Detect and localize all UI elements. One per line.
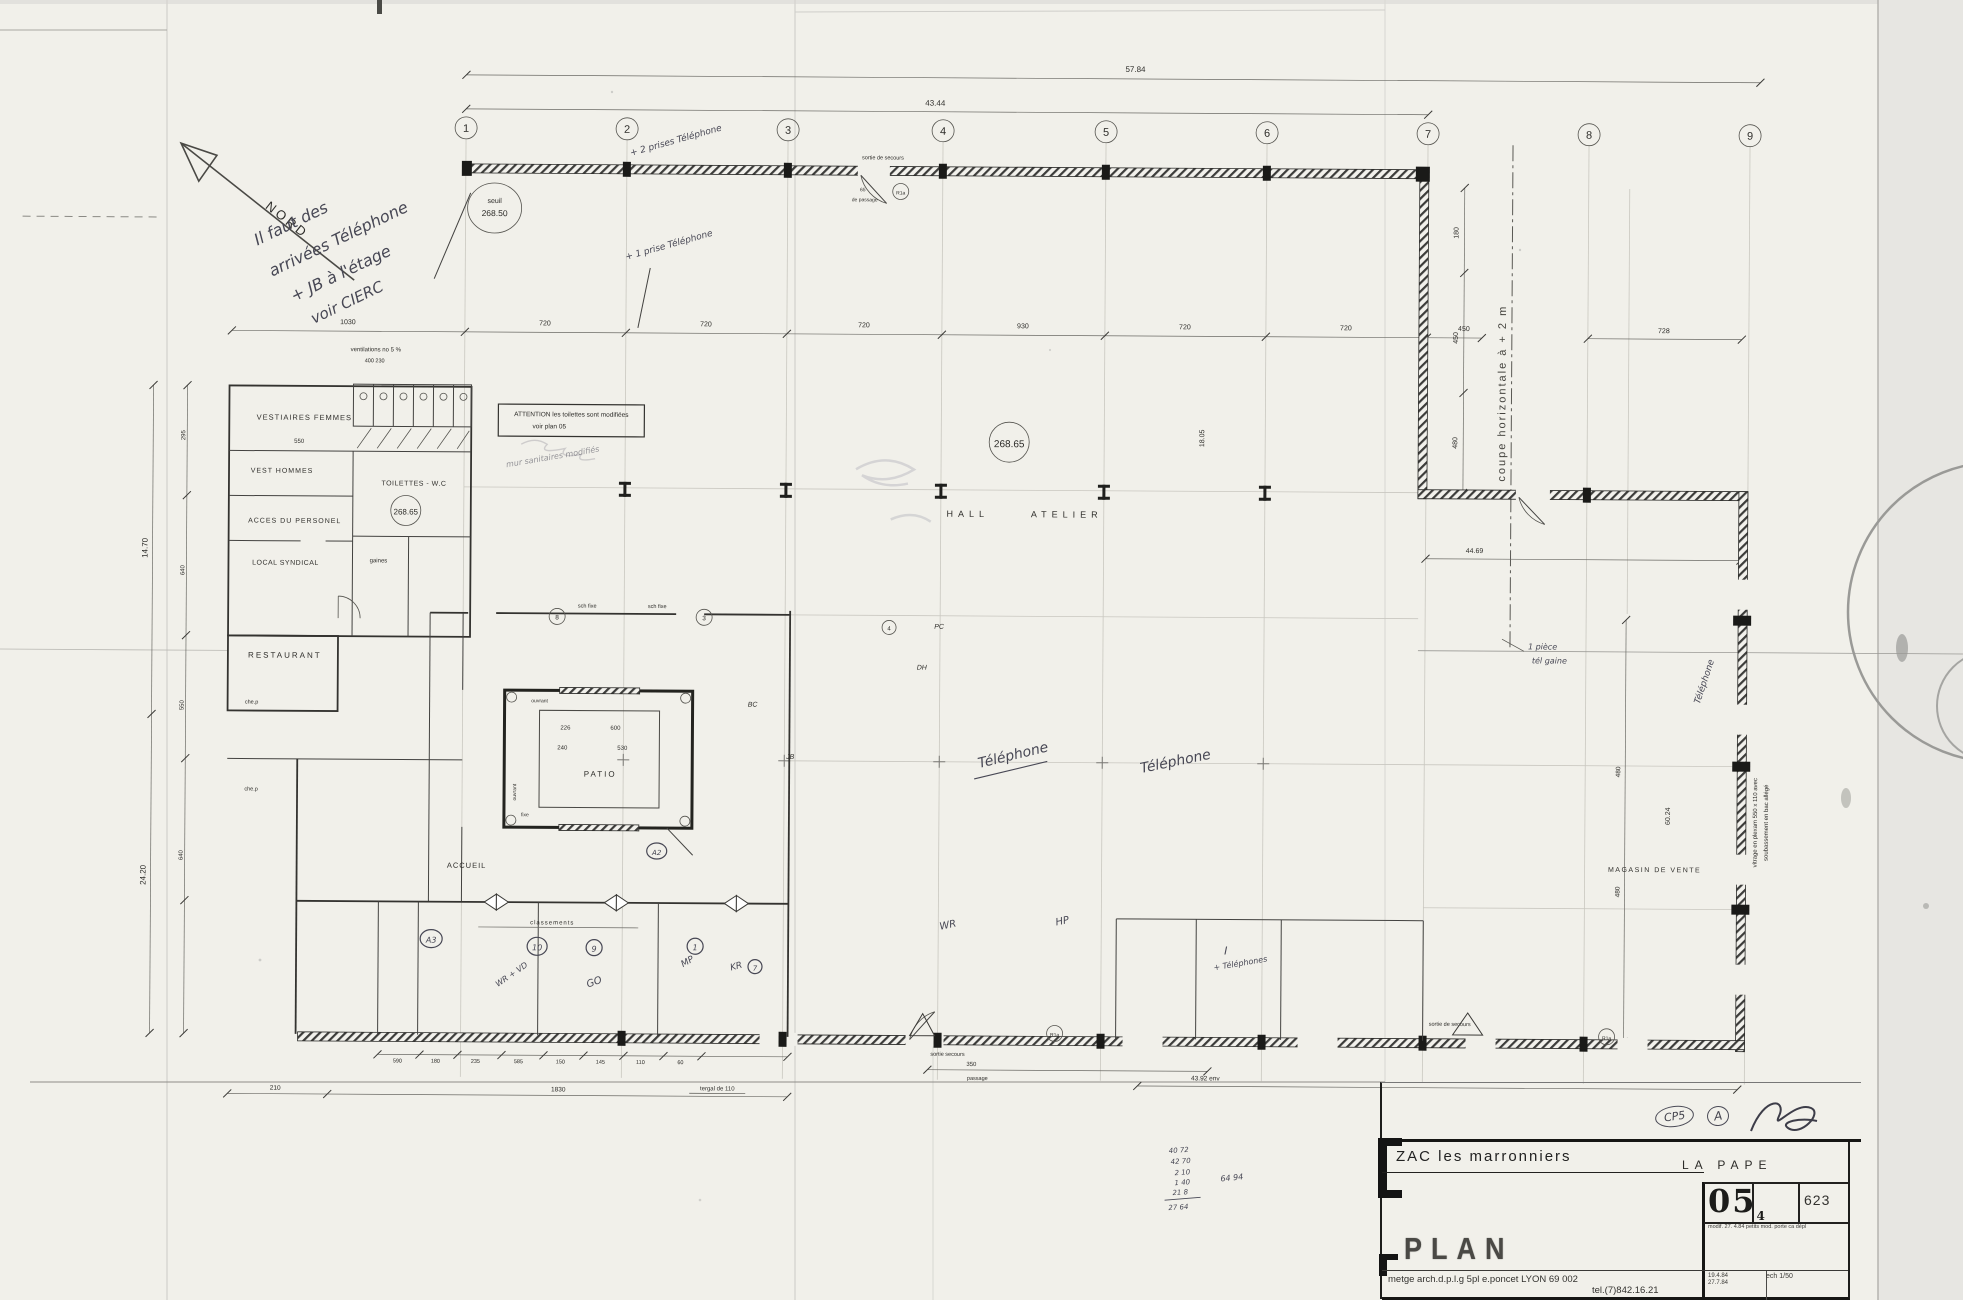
dim-bottom-1: 180 [431, 1059, 440, 1065]
drawing-content: 1 2 3 4 5 6 7 8 9 [0, 58, 1963, 1217]
dim-patio-600: 600 [610, 726, 621, 732]
vertical-texts: coupe horizontale à + 2 m vitrage en ple… [1494, 305, 1773, 868]
architect-phone: tel.(7)842.16.21 [1592, 1285, 1659, 1296]
dim-bottom-0: 590 [393, 1058, 402, 1064]
sortie-top-passage: de passage [852, 197, 878, 203]
project-name: ZAC les marronniers [1396, 1148, 1572, 1165]
dim-550: 550 [294, 439, 305, 445]
attention-note: ATTENTION les toilettes sont modifiées v… [498, 404, 644, 470]
registration-bracket-icon [1378, 1138, 1402, 1198]
note-go: GO [585, 975, 604, 991]
code-10: 10 [532, 943, 542, 952]
mark-ouvrant-1: ouvrant [531, 698, 548, 704]
note-plus2-prises: + 2 prises Téléphone [629, 122, 724, 158]
sortie-labels: sortie de secours 65 de passage sortie s… [846, 155, 1476, 1085]
note-tel-gaine: tél gaine [1532, 655, 1567, 665]
modif-label: modif. [1708, 1224, 1723, 1230]
architect-row: metge arch.d.p.l.g 5pl e.poncet LYON 69 … [1382, 1270, 1848, 1298]
mark-pc: PC [934, 624, 945, 631]
dim-patio-226: 226 [560, 725, 571, 731]
modif-text: 27. 4.84 petits mod. porte ca dépl [1725, 1224, 1807, 1230]
note-telephone-3: Téléphone [1692, 658, 1717, 706]
seuil-label: seuil [487, 198, 502, 205]
note-wr-vd: WR + VD [494, 960, 529, 988]
note-1-piece: 1 pièce [1528, 641, 1557, 651]
stamp-circle: CP5 [1654, 1103, 1696, 1129]
tally-row-2: 2 10 [1174, 1168, 1191, 1177]
outer-walls [298, 160, 1754, 1053]
note-i-label: I [1224, 944, 1227, 957]
sortie-bottom-passage: passage [967, 1076, 988, 1082]
construction-grid [0, 136, 1963, 1086]
grid-bubble-5: 5 [1103, 127, 1109, 139]
room-acces-personnel: ACCES DU PERSONEL [248, 518, 341, 526]
sheet-ref: 623 [1804, 1192, 1830, 1208]
signature-scribble [1741, 1091, 1833, 1141]
dim-right-450: 450 [1453, 332, 1460, 344]
level-markers: 268.65 268.65 [391, 418, 1030, 529]
mark-dh: DH [917, 665, 928, 672]
mark-ouvrant-2: ouvrant [512, 783, 518, 800]
grid-bubble-2: 2 [624, 124, 630, 136]
mark-classements: classements [530, 920, 574, 926]
code-8: 8 [555, 614, 559, 621]
mark-schfixe-2: sch fixe [648, 604, 667, 610]
mark-schfixe-1: sch fixe [578, 604, 597, 610]
room-hall: HALL [946, 509, 989, 519]
tally-row-1: 42 70 [1170, 1157, 1191, 1166]
room-chep-2: che.p [244, 787, 258, 793]
structural-columns [617, 482, 1271, 770]
door-swings [856, 175, 1547, 1043]
vitrage-line2: soubassement en bac allégé [1764, 784, 1770, 861]
code-r1a-bottom: R1a [1050, 1032, 1059, 1038]
grid-bubble-8: 8 [1586, 130, 1592, 142]
modification-note: modif. 27. 4.84 petits mod. porte ca dép… [1708, 1224, 1846, 1231]
dim-row-6: 720 [1340, 325, 1352, 332]
dim-5784: 57.84 [1125, 65, 1146, 74]
seuil-level-marker: seuil 268.50 [434, 183, 522, 280]
dim-row-5: 720 [1179, 324, 1191, 331]
dim-4392: 43.92 env [1191, 1075, 1220, 1082]
dim-right-180: 180 [1453, 227, 1460, 239]
room-atelier: ATELIER [1031, 509, 1103, 519]
attention-line2: voir plan 05 [532, 423, 566, 430]
vent-line2: 400 230 [365, 358, 385, 364]
handwritten-tally: 40 72 42 70 2 10 1 40 21 8 27 64 64 94 [1165, 1146, 1244, 1213]
attention-scribble: mur sanitaires modifiés [505, 444, 600, 470]
dim-bottom-5: 145 [596, 1060, 605, 1066]
note-kr: KR [729, 961, 743, 974]
attention-line1: ATTENTION les toilettes sont modifiées [514, 411, 629, 419]
scale-cell: ech 1/50 [1766, 1273, 1793, 1280]
seuil-value: 268.50 [482, 208, 508, 218]
dim-4469: 44.69 [1466, 548, 1484, 555]
dim-4344: 43.44 [925, 99, 946, 108]
scanned-floor-plan-sheet: 1 2 3 4 5 6 7 8 9 [0, 0, 1963, 1300]
dim-bottom-7: 60 [677, 1060, 683, 1066]
dim-right-480: 480 [1452, 437, 1459, 449]
tally-row-0: 40 72 [1168, 1146, 1189, 1155]
dim-left-1470: 14.70 [140, 537, 149, 558]
grid-bubble-4: 4 [940, 126, 946, 138]
dim-bottom-4: 150 [556, 1059, 565, 1065]
revision-circle: A [1705, 1105, 1730, 1128]
note-hp: HP [1055, 915, 1071, 929]
grid-bubble-7: 7 [1425, 129, 1431, 141]
room-chep-1: che.p [245, 700, 259, 706]
project-location: LA PAPE [1682, 1158, 1772, 1172]
mark-fixe: fixe [521, 812, 529, 818]
note-plus1-prise: + 1 prise Téléphone [624, 228, 714, 263]
date-1: 19.4.84 [1708, 1273, 1766, 1280]
code-9: 9 [592, 945, 597, 954]
dim-row-4: 930 [1017, 323, 1029, 330]
title-block-main: ZAC les marronniers LA PAPE 054 623 modi… [1382, 1142, 1850, 1300]
dim-row-0: 1030 [340, 319, 356, 326]
dim-left-small-2: 550 [180, 699, 186, 710]
dim-tergal: tergal de 110 [700, 1086, 735, 1092]
room-vest-hommes: VEST HOMMES [251, 468, 314, 475]
dim-left-small-0: 295 [181, 429, 187, 440]
note-wr: WR [939, 919, 958, 933]
dim-mag-6024: 60.24 [1665, 807, 1672, 825]
vitrage-line1: vitrage en plexam 550 x 110 avec [1753, 778, 1760, 867]
code-7: 7 [753, 965, 758, 973]
sheet-number-box: 054 623 [1704, 1182, 1848, 1224]
room-restaurant: RESTAURANT [248, 651, 322, 660]
sortie-bottom-dim: 350 [966, 1062, 977, 1068]
dim-patio-530: 530 [617, 746, 628, 752]
title-block-revision-strip: CP5 A [1382, 1083, 1861, 1142]
grid-bubble-9: 9 [1747, 131, 1753, 143]
ventilation-note: ventilations no 5 % 400 230 [350, 347, 401, 364]
dim-row-7: 450 [1458, 326, 1470, 333]
drawing-title: PLAN [1404, 1232, 1514, 1267]
sortie-bottom: sortie secours [930, 1052, 965, 1058]
sortie-top: sortie de secours [862, 155, 904, 161]
hall-level: 268.65 [994, 439, 1025, 450]
dim-row-3: 720 [858, 322, 870, 329]
code-a2: A2 [651, 849, 662, 857]
room-local-syndical: LOCAL SYNDICAL [252, 560, 319, 567]
code-3: 3 [702, 615, 706, 622]
dim-bottom-2: 235 [471, 1059, 480, 1065]
room-accueil: ACCUEIL [447, 861, 487, 870]
code-r1a-top: R1a [896, 190, 905, 196]
sortie-right: sortie de secours [1429, 1022, 1471, 1028]
title-block: CP5 A ZAC les marronniers LA PAPE 054 62… [1380, 1082, 1861, 1299]
dim-210: 210 [270, 1085, 281, 1092]
accueil-wing [296, 608, 791, 1037]
dim-1830: 1830 [551, 1086, 566, 1093]
note-telephone-1: Téléphone [976, 739, 1049, 771]
dim-patio-240: 240 [557, 745, 568, 751]
code-1: 1 [693, 943, 698, 952]
room-magasin: MAGASIN DE VENTE [1608, 867, 1701, 875]
dim-left-2420: 24.20 [138, 864, 147, 885]
wc-level: 268.65 [394, 507, 419, 516]
dim-mag-480b: 480 [1614, 886, 1621, 897]
room-toilettes: TOILETTES - W.C [381, 480, 446, 487]
code-a3: A3 [425, 936, 437, 945]
grid-bubble-3: 3 [785, 125, 791, 137]
dim-bottom-6: 110 [636, 1060, 645, 1066]
dim-left-small-1: 640 [180, 564, 186, 575]
dim-bottom-3: 585 [514, 1059, 523, 1065]
room-vestiaires-femmes: VESTIAIRES FEMMES [257, 413, 352, 423]
dim-728: 728 [1658, 328, 1670, 335]
dim-left-small-3: 640 [179, 849, 185, 860]
mark-bc: BC [748, 702, 759, 709]
revision-annotations: CP5 A [1655, 1091, 1833, 1141]
note-mp: MP [680, 954, 697, 970]
tally-row-4: 21 8 [1172, 1188, 1189, 1197]
sheet-number-empty-cell [1752, 1184, 1800, 1222]
architect-name: metge arch.d.p.l.g 5pl e.poncet LYON 69 … [1388, 1274, 1578, 1285]
dim-1805: 18.05 [1199, 429, 1206, 447]
room-patio: PATIO [584, 770, 617, 779]
note-telephone-2: Téléphone [1139, 747, 1213, 777]
tally-sum: 64 94 [1220, 1172, 1244, 1183]
date-cell: 19.4.84 27.7.84 [1704, 1271, 1767, 1300]
dim-row-1: 720 [539, 320, 551, 327]
sortie-top-width: 65 [860, 187, 866, 193]
tally-row-5: 27 64 [1168, 1203, 1189, 1212]
dim-mag-480a: 480 [1615, 766, 1622, 777]
vent-line1: ventilations no 5 % [351, 347, 402, 353]
code-4: 4 [887, 626, 891, 632]
grid-bubble-6: 6 [1264, 128, 1270, 140]
circled-codes: A3 10 9 1 7 A2 4 8 3 R1a R1a R1a [420, 181, 1620, 1045]
bottom-strip-rooms [1116, 919, 1424, 1041]
note-i-telephones: + Téléphones [1213, 953, 1268, 972]
mark-jb: JB [785, 754, 795, 761]
date-2: 27.7.84 [1708, 1280, 1766, 1287]
coupe-label: coupe horizontale à + 2 m [1496, 305, 1509, 482]
technical-marks: PC DH JB BC sch fixe sch fixe classement… [511, 603, 945, 929]
grid-bubble-1: 1 [463, 123, 469, 135]
tally-row-3: 1 40 [1174, 1178, 1191, 1187]
code-r1a-right: R1a [1602, 1036, 1611, 1042]
room-gaines: gaines [370, 558, 388, 564]
dim-row-2: 720 [700, 321, 712, 328]
